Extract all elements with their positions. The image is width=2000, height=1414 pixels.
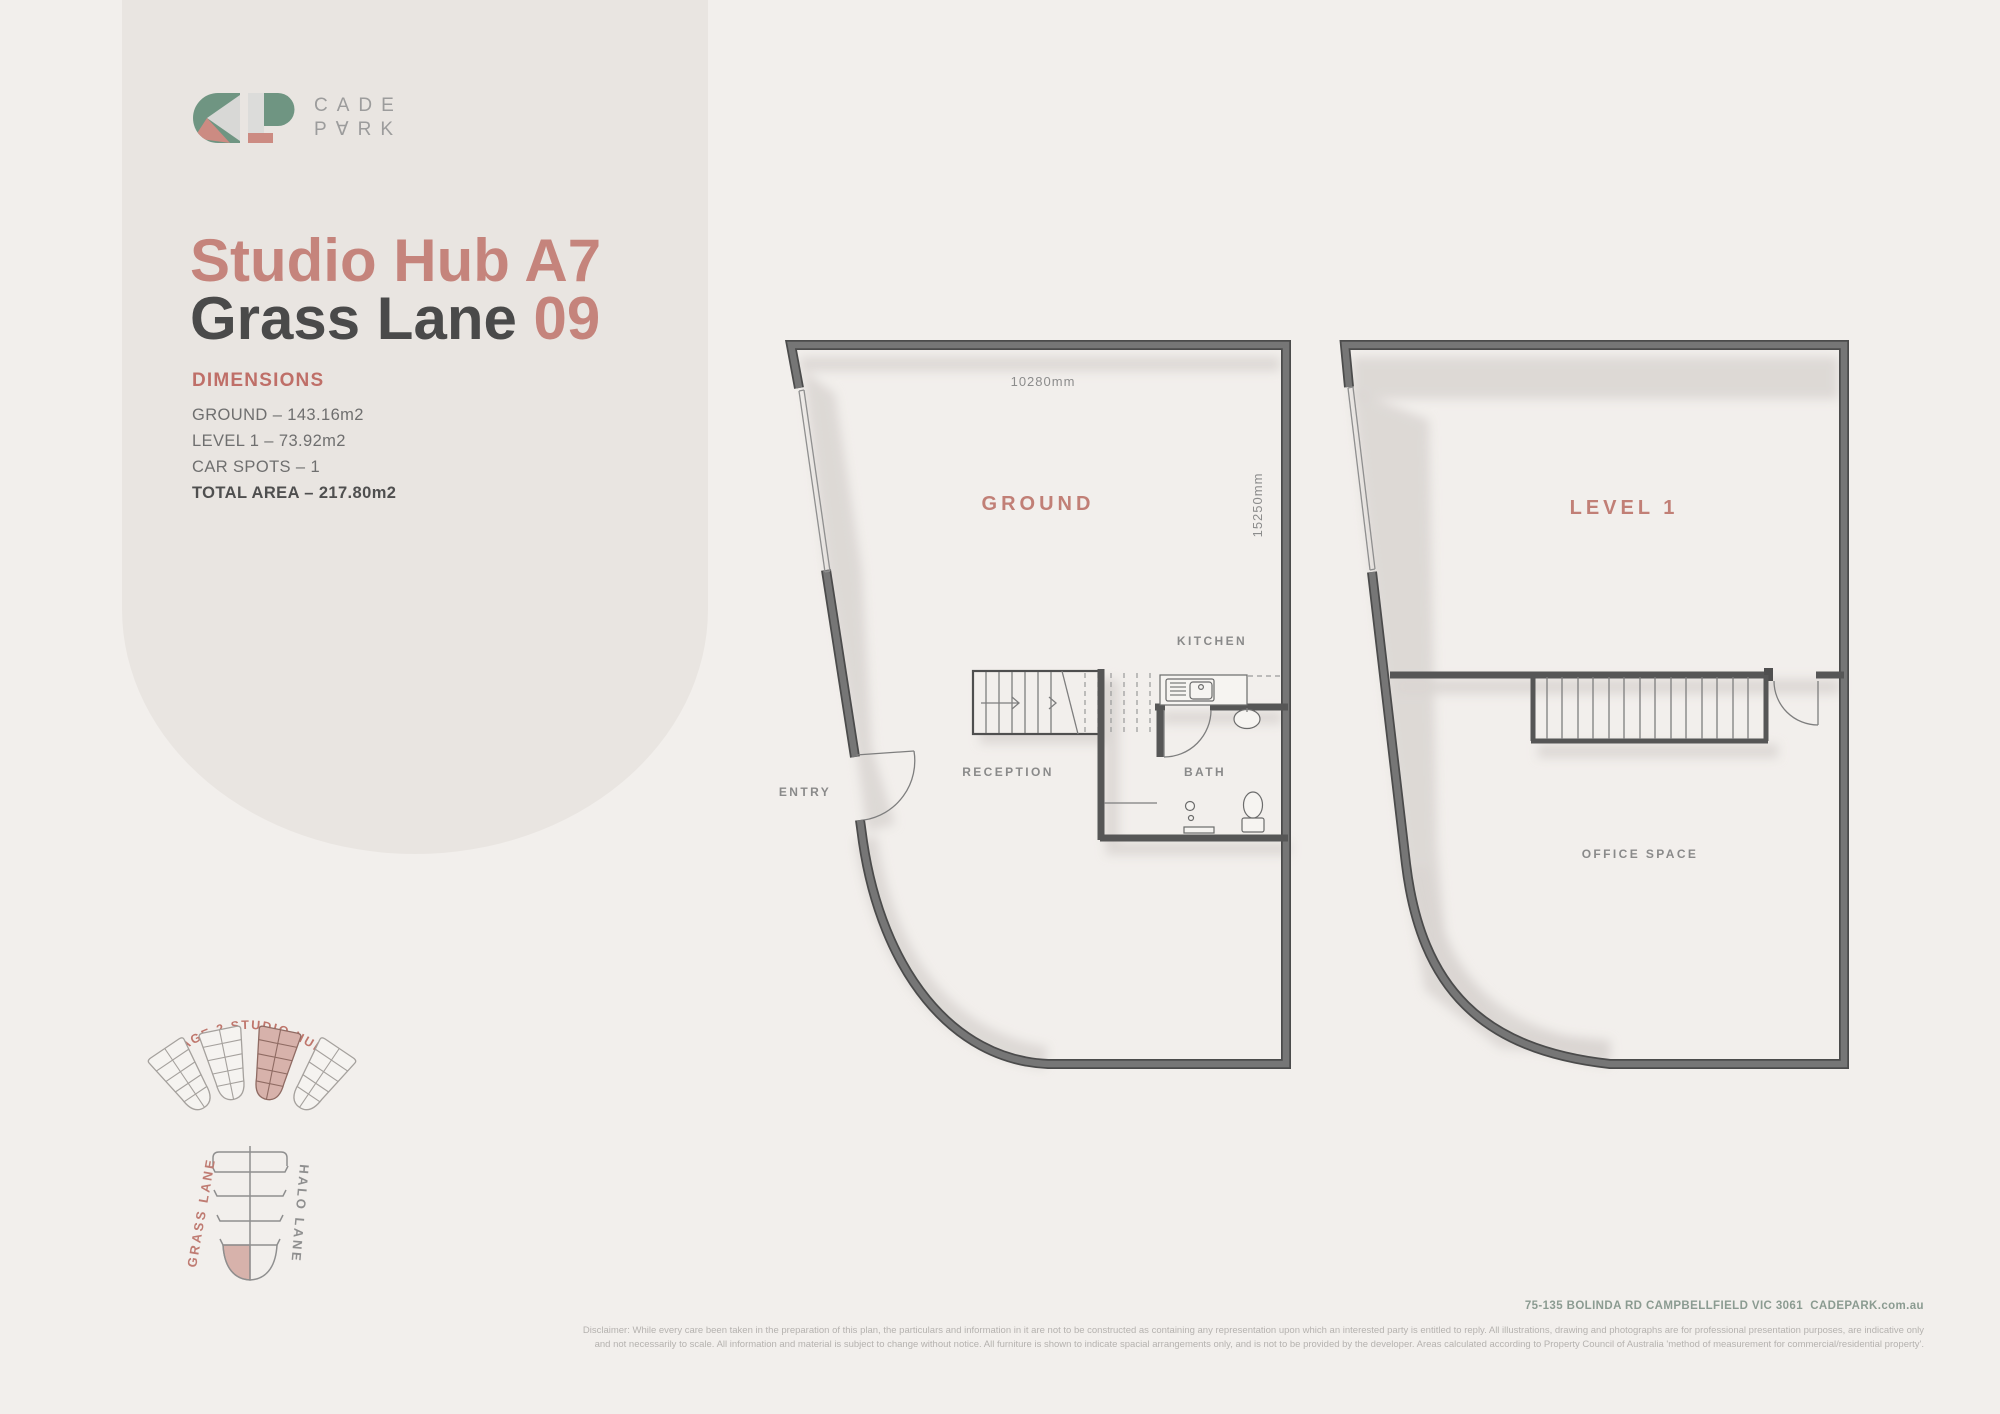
ground-depth-dimension: 15250mm [1250, 473, 1265, 538]
footer-disclaimer: Disclaimer: While every care been taken … [364, 1324, 1924, 1351]
shower-drain-fixture [1184, 802, 1214, 834]
ground-floor-plan: GROUND 10280mm 15250mm ENTRY RECEPTION K… [779, 345, 1290, 1064]
grass-lane-label: GRASS LANE [184, 1156, 218, 1268]
toilet-fixture [1242, 792, 1264, 832]
ground-plan-label: GROUND [982, 493, 1095, 515]
kitchen-label: KITCHEN [1177, 634, 1247, 648]
entry-label: ENTRY [779, 785, 831, 799]
disclaimer-line-2: and not necessarily to scale. All inform… [364, 1338, 1924, 1352]
ground-width-dimension: 10280mm [1011, 374, 1076, 389]
level1-plan-label: LEVEL 1 [1570, 497, 1679, 519]
floorplan-brochure-page: CADE P∀RK Studio Hub A7 Grass Lane 09 DI… [0, 0, 2000, 1414]
stage2-site-diagram: STAGE 2 STUDIO HUBS [0, 0, 357, 1119]
disclaimer-line-1: Disclaimer: While every care been taken … [364, 1324, 1924, 1338]
lane-hub-diagram: GRASS LANE HALO LANE [184, 1146, 312, 1280]
bath-label: BATH [1184, 765, 1226, 779]
stage2-arc-label: STAGE 2 STUDIO HUBS [0, 0, 327, 1057]
kitchen-bench [1160, 675, 1283, 705]
hub-blade-3-highlighted [246, 1026, 302, 1104]
halo-lane-label: HALO LANE [288, 1164, 312, 1264]
reception-label: RECEPTION [962, 765, 1054, 779]
ground-stairs [973, 671, 1150, 734]
plans-canvas: GROUND 10280mm 15250mm ENTRY RECEPTION K… [0, 0, 2000, 1414]
level1-floor-plan: LEVEL 1 OFFICE SPACE [1345, 345, 1844, 1064]
footer-address: 75-135 BOLINDA RD CAMPBELLFIELD VIC 3061… [1525, 1300, 1924, 1312]
office-space-label: OFFICE SPACE [1582, 847, 1699, 861]
